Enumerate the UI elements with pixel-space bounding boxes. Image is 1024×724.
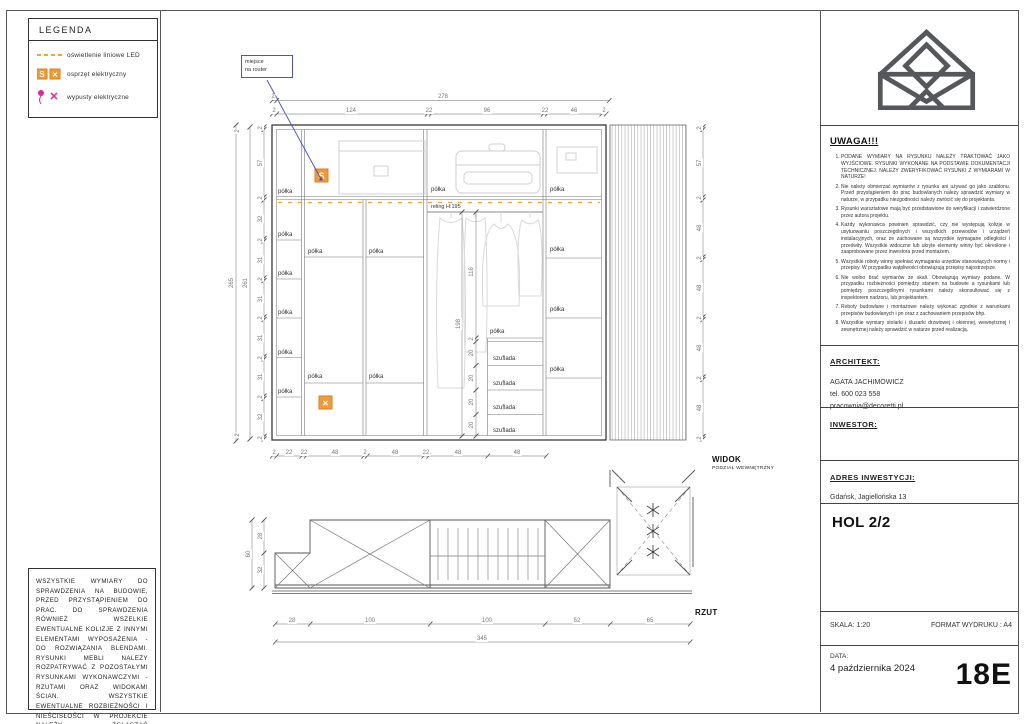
format-label: FORMAT WYDRUKU : A4: [931, 622, 1012, 629]
rzut-caption: RZUT: [695, 608, 718, 617]
drawer-label: szuflada: [493, 405, 515, 411]
dim-label: 48: [697, 404, 703, 413]
shelf-label: półka: [550, 307, 564, 313]
dim-label: 2: [362, 450, 367, 456]
dim-label: 65: [646, 618, 655, 624]
dim-label: 48: [697, 284, 703, 293]
socket-outlet-symbol: ✕: [319, 396, 332, 409]
dim-label: 2: [601, 108, 606, 114]
note-item: Nie wolno brać wymiarów ze skali. Obowią…: [841, 275, 1010, 302]
dim-label: 100: [364, 618, 376, 624]
shelf-label: półka: [431, 187, 445, 193]
ceiling-light-symbols: [647, 503, 659, 559]
dimension-ticks-rzut: [250, 518, 693, 645]
dim-label: 2: [469, 336, 475, 341]
dim-label: 2: [258, 394, 264, 399]
dim-label: 20: [469, 374, 475, 383]
router-callout: miejsce na router: [241, 55, 293, 78]
titleblock-rule: [820, 345, 1018, 346]
notes-title: UWAGA!!!: [830, 136, 878, 147]
titleblock-rule: [820, 460, 1018, 461]
shelf-label: półka: [278, 271, 292, 277]
dim-label: 31: [258, 334, 264, 343]
widok-caption: WIDOK: [712, 455, 741, 464]
scale-label: SKALA: 1:20: [830, 622, 870, 629]
shelf-label: półka: [490, 329, 504, 335]
shelf-label: półka: [550, 247, 564, 253]
address-label: ADRES INWESTYCJI:: [830, 473, 915, 482]
note-item: Wszystkie wymiary stolarki i ślusarki dr…: [841, 320, 1010, 334]
drawer-label: szuflada: [493, 428, 515, 434]
dim-label: 22: [541, 108, 550, 114]
dim-label: 265: [229, 277, 235, 289]
architect-label: ARCHITEKT:: [830, 357, 880, 366]
dim-label: 2: [271, 108, 276, 114]
dim-label: 20: [469, 398, 475, 407]
dim-label: 124: [345, 108, 357, 114]
dim-label: 60: [246, 550, 252, 559]
titleblock-rule: [820, 645, 1018, 646]
dim-label: 32: [258, 413, 264, 422]
dim-label: 32: [258, 566, 264, 575]
dim-label: 2: [235, 432, 241, 437]
note-item: Każdy wykonawca powinien sprawdzić, czy …: [841, 222, 1010, 256]
drawer-label: szuflada: [493, 356, 515, 362]
dim-label: 2: [258, 237, 264, 242]
address-value: Gdańsk, Jagiellońska 13: [830, 492, 1008, 504]
drawing-title: HOL 2/2: [832, 514, 891, 531]
dim-label: 2: [697, 315, 703, 320]
shelf-label: półka: [278, 350, 292, 356]
note-item: Roboty budowlane i montażowe należy wyko…: [841, 304, 1010, 318]
dim-label: 48: [697, 344, 703, 353]
shelf-label: półka: [308, 249, 322, 255]
dim-label: 22: [300, 450, 309, 456]
dim-label: 261: [243, 277, 249, 289]
dim-label: 2: [258, 195, 264, 200]
dim-label: 57: [697, 159, 703, 168]
dimension-lines-rzut: [252, 520, 690, 642]
dim-label: 2: [235, 128, 241, 133]
dim-label: 2: [258, 125, 264, 130]
plan-view: [272, 470, 695, 594]
architect-email: pracownia@decoretti.pl: [830, 401, 1008, 413]
dim-label: 2: [697, 255, 703, 260]
dim-label: 198: [456, 318, 462, 330]
svg-text:✕: ✕: [322, 399, 329, 408]
shelf-label: półka: [278, 232, 292, 238]
dim-label: 28: [288, 618, 297, 624]
shelf-label: półka: [278, 310, 292, 316]
dim-label: 31: [258, 373, 264, 382]
dim-label: 22: [425, 108, 434, 114]
dim-label: 22: [422, 450, 431, 456]
dim-label: 48: [697, 224, 703, 233]
address-section: ADRES INWESTYCJI: Gdańsk, Jagiellońska 1…: [820, 467, 1018, 504]
note-item: Rysunki warsztatowe mają być przedstawio…: [841, 206, 1010, 220]
dim-label: 31: [258, 295, 264, 304]
shelf-label: półka: [550, 187, 564, 193]
titleblock-rule: [820, 611, 1018, 612]
widok-caption-sub: PODZIAŁ WEWNĘTRZNY: [712, 466, 774, 471]
dim-label: 48: [331, 450, 340, 456]
dim-label: 2: [697, 125, 703, 130]
dim-label: 2: [697, 375, 703, 380]
dim-label: 2: [258, 435, 264, 440]
architect-section: ARCHITEKT: AGATA JACHIMOWICZ tel. 600 02…: [820, 351, 1018, 413]
architect-phone: tel. 600 023 558: [830, 389, 1008, 401]
rail-label: reling H:195: [431, 205, 461, 211]
note-item: Wszystkie roboty winny spełniać wymagani…: [841, 259, 1010, 273]
titleblock-rule: [820, 125, 1018, 126]
dim-label: 278: [437, 94, 449, 100]
ceiling-light-zone: [610, 470, 695, 575]
dim-label: 2: [258, 315, 264, 320]
notes-list: PODANE WYMIARY NA RYSUNKU NALEŻY TRAKTOW…: [830, 154, 1010, 334]
investor-section: INWESTOR:: [820, 414, 1018, 432]
side-wall-panel: [610, 125, 686, 440]
drawing-sheet: LEGENDA oświetlenie liniowe LED S ✕ osp: [0, 0, 1024, 724]
shelf-label: półka: [308, 374, 322, 380]
dim-label: 20: [469, 349, 475, 358]
dim-label: 2: [271, 450, 276, 456]
dim-label: 48: [391, 450, 400, 456]
wardrobe-elevation: S ✕: [267, 80, 686, 440]
dim-label: 52: [573, 618, 582, 624]
plan-hanger-marks: [438, 528, 538, 580]
dim-label: 57: [258, 159, 264, 168]
shelf-label: półka: [369, 374, 383, 380]
dim-label: 2: [258, 355, 264, 360]
scale-format-row: SKALA: 1:20 FORMAT WYDRUKU : A4: [830, 622, 1012, 629]
dim-label: 96: [483, 108, 492, 114]
shelf-label: półka: [278, 189, 292, 195]
sheet-code: 18E: [930, 658, 1012, 692]
dim-label: 46: [570, 108, 579, 114]
investor-label: INWESTOR:: [830, 420, 877, 429]
dim-label: 48: [513, 450, 522, 456]
shelf-label: półka: [369, 249, 383, 255]
dim-label: 2: [258, 276, 264, 281]
dim-label: 116: [469, 266, 475, 278]
dim-label: 2: [697, 195, 703, 200]
dim-label: 2: [270, 94, 275, 100]
note-item: Nie należy obmierzać wymiarów z rysunku …: [841, 184, 1010, 204]
dim-label: 345: [476, 636, 488, 642]
dim-label: 20: [469, 421, 475, 430]
note-item: PODANE WYMIARY NA RYSUNKU NALEŻY TRAKTOW…: [841, 154, 1010, 181]
architect-name: AGATA JACHIMOWICZ: [830, 377, 1008, 389]
dim-label: 48: [454, 450, 463, 456]
dim-label: 32: [258, 215, 264, 224]
dim-label: 2: [697, 435, 703, 440]
shelf-label: półka: [278, 389, 292, 395]
dim-label: 22: [285, 450, 294, 456]
drawer-label: szuflada: [493, 381, 515, 387]
dim-label: 28: [258, 532, 264, 541]
dim-label: 100: [481, 618, 493, 624]
shelf-label: półka: [550, 367, 564, 373]
dim-label: 31: [258, 256, 264, 265]
studio-logo: [874, 28, 979, 110]
notes-section: UWAGA!!! PODANE WYMIARY NA RYSUNKU NALEŻ…: [830, 131, 1010, 336]
